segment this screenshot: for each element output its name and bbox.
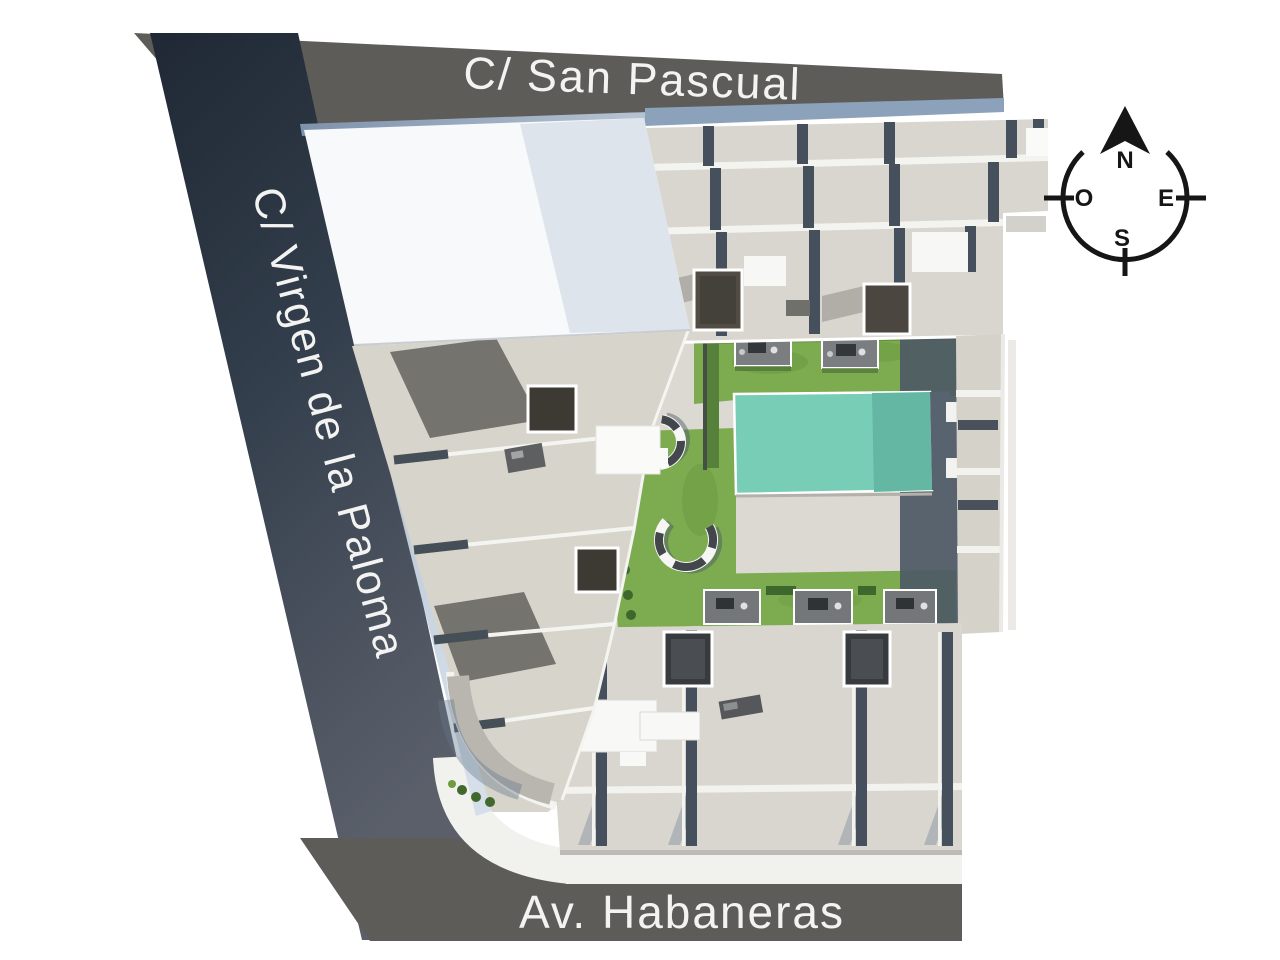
roof-structure: [652, 448, 668, 468]
roof-structure: [744, 256, 786, 286]
patio-chair: [827, 351, 833, 357]
patio-shadow: [735, 366, 791, 371]
east-sidewalk: [1008, 340, 1016, 630]
roof-structure: [640, 712, 700, 740]
patio-table: [808, 598, 828, 610]
patio-table: [716, 598, 734, 609]
patio-chair: [741, 603, 748, 610]
street-label-habaneras: Av. Habaneras: [519, 886, 845, 938]
patio-south-3: [884, 590, 936, 624]
swimming-pool: [734, 391, 958, 496]
patio-chair: [921, 603, 928, 610]
skylight-glass: [851, 639, 883, 679]
patio-table: [748, 342, 766, 353]
roof-joint-strip: [957, 546, 1002, 553]
site-plan-canvas: C/ San Pascual C/ Virgen de la Paloma Av…: [0, 0, 1280, 960]
roof-structure: [912, 232, 968, 272]
east-kerb: [1001, 334, 1003, 632]
roof-joint-strip: [956, 390, 1003, 397]
compass-letter-south: S: [1114, 225, 1130, 252]
roof-structure: [620, 752, 646, 766]
patio-chair: [835, 603, 842, 610]
skylight: [528, 386, 576, 432]
site-plan: C/ San Pascual C/ Virgen de la Paloma Av…: [0, 0, 1280, 960]
hedge-strip: [766, 586, 796, 595]
patio-table: [896, 598, 914, 609]
pool-deck-shadow: [736, 494, 932, 496]
compass-letter-north: N: [1116, 147, 1133, 174]
planter-edge: [703, 340, 707, 470]
pool-water-shaded: [872, 392, 932, 492]
skylight-glass: [671, 639, 705, 679]
patio-south-1: [704, 590, 760, 624]
hedge-column: [707, 340, 719, 468]
compass-rose: N E S O: [1044, 106, 1206, 276]
roof-joint-strip: [956, 468, 1003, 475]
roof-edge-shadow: [560, 850, 962, 855]
pool-step: [946, 402, 958, 422]
skylight: [576, 548, 618, 592]
compass-letter-east: E: [1158, 185, 1174, 212]
east-roof-divider: [958, 420, 998, 430]
compass-letter-west: O: [1075, 185, 1094, 212]
white-roof-building: [304, 118, 690, 345]
patio-chair: [739, 349, 745, 355]
east-roof: [956, 334, 1003, 634]
east-roof-divider: [958, 500, 998, 510]
east-wing: [956, 334, 1003, 634]
hedge-strip: [858, 586, 876, 595]
north-building: [645, 119, 1048, 343]
patio-chair: [859, 349, 866, 356]
skylight: [864, 284, 910, 334]
patio-south-2: [794, 590, 852, 624]
east-sidewalk-step: [1006, 216, 1046, 232]
rooftop-unit: [786, 300, 810, 316]
patio-shadow: [822, 368, 878, 373]
patio-chair: [771, 347, 778, 354]
skylight-glass: [700, 276, 736, 324]
patio-table: [836, 344, 856, 356]
roof-structure: [596, 426, 660, 474]
roof-structure: [1026, 128, 1048, 156]
